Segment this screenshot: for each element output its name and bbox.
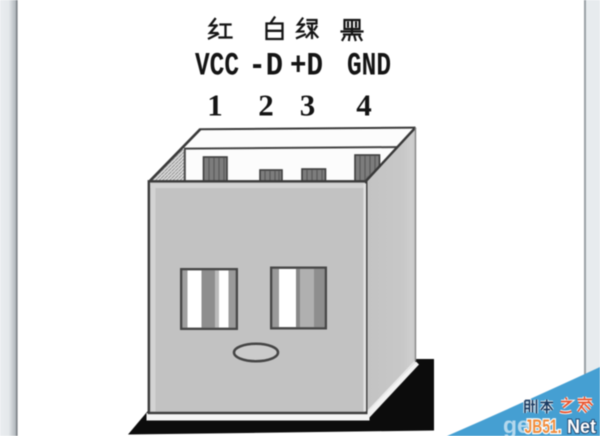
svg-text:2: 2 [258, 88, 274, 123]
svg-text:VCC: VCC [195, 48, 239, 85]
svg-text:GND: GND [347, 48, 391, 85]
svg-text:Net: Net [567, 417, 597, 436]
svg-text:+D: +D [290, 48, 323, 85]
svg-text:3: 3 [300, 88, 316, 123]
svg-text:4: 4 [356, 88, 372, 123]
svg-text:JB51.: JB51. [525, 417, 562, 436]
svg-text:1: 1 [207, 88, 223, 123]
svg-text:-D: -D [249, 48, 284, 85]
